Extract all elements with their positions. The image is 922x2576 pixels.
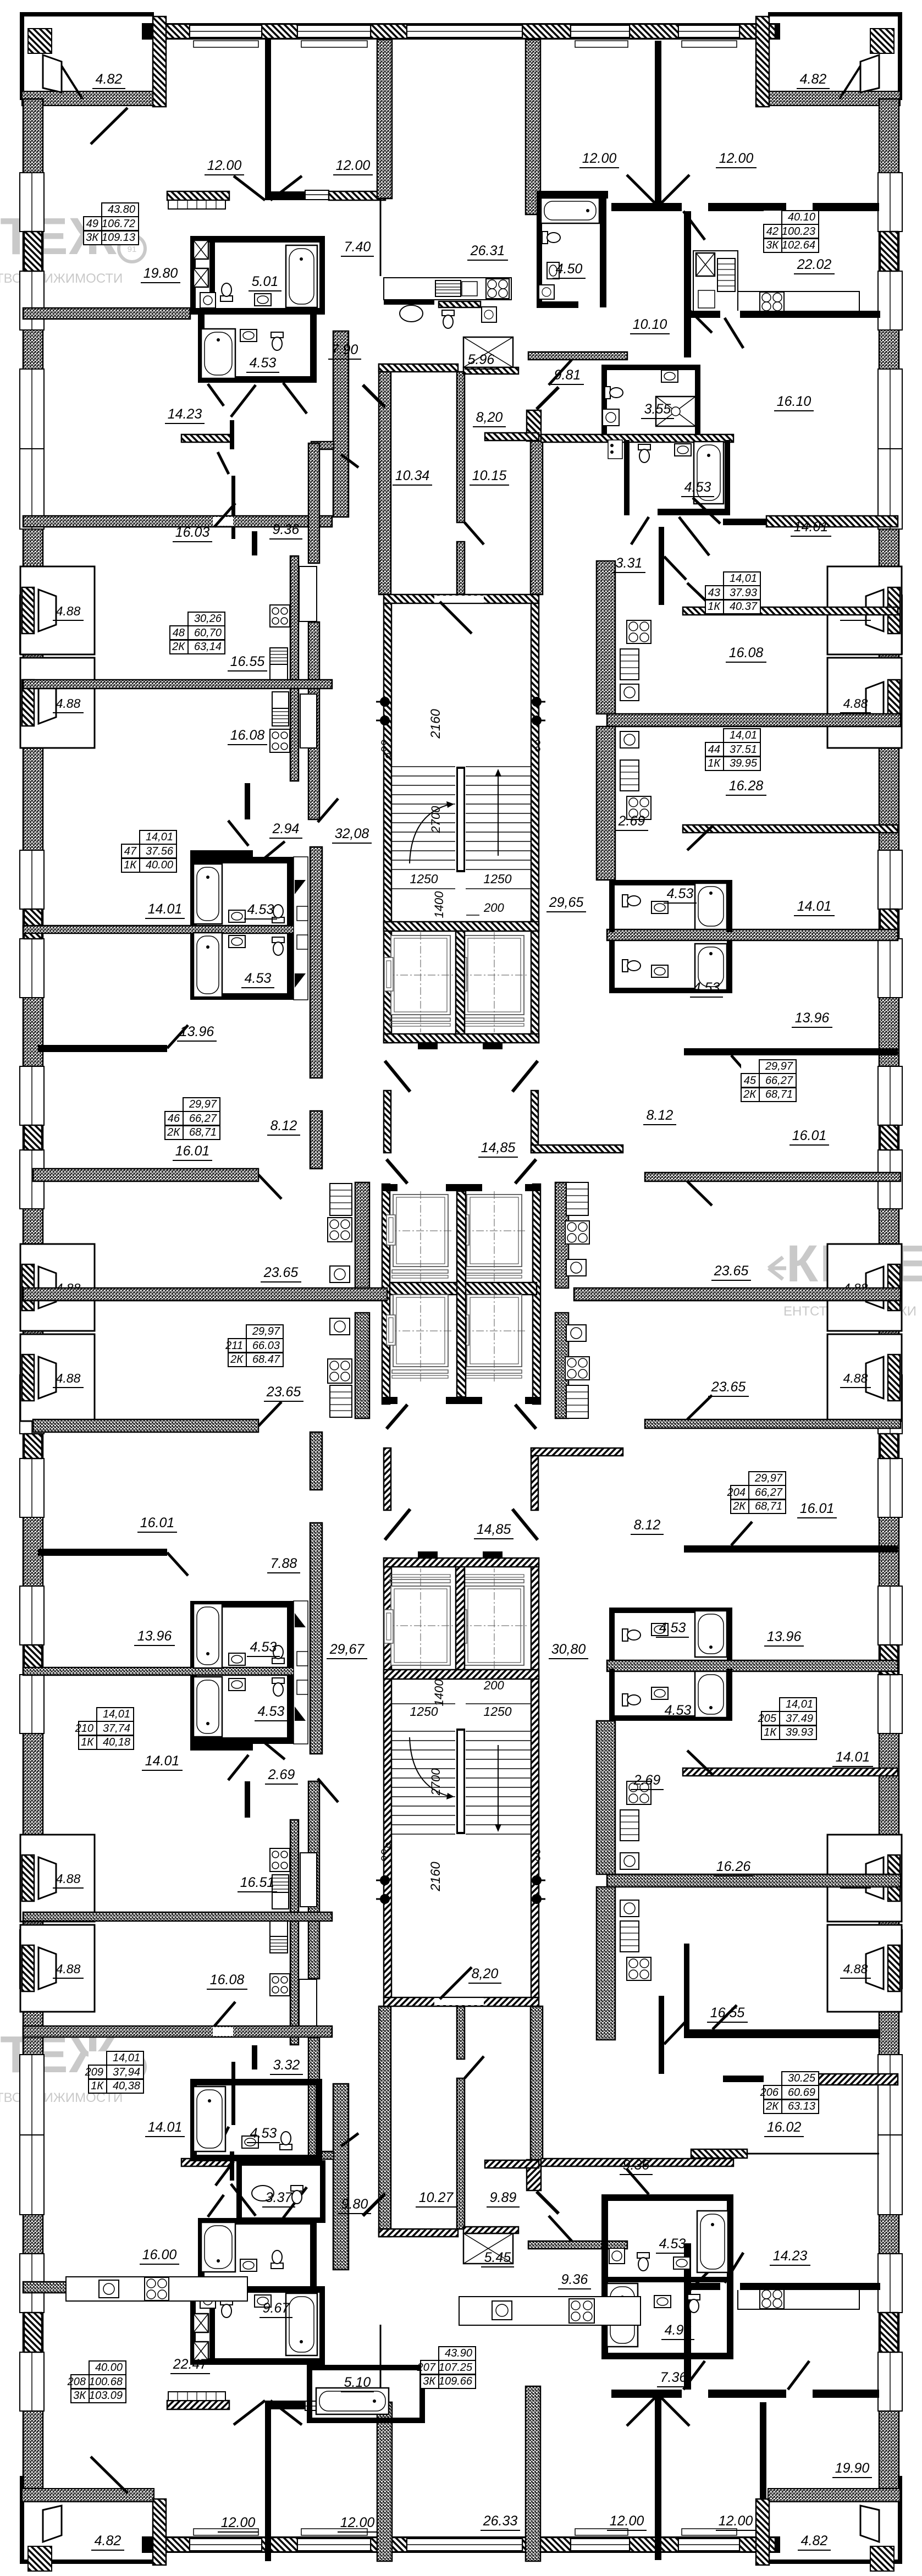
- svg-text:16.55: 16.55: [710, 2005, 745, 2021]
- svg-text:60.69: 60.69: [788, 2087, 815, 2099]
- svg-text:14.01: 14.01: [797, 899, 832, 914]
- svg-text:7.90: 7.90: [332, 342, 358, 357]
- svg-text:40.00: 40.00: [146, 859, 173, 871]
- svg-text:7.40: 7.40: [344, 239, 371, 255]
- svg-text:205: 205: [758, 1713, 777, 1725]
- svg-text:4.53: 4.53: [684, 480, 711, 495]
- svg-text:107.25: 107.25: [439, 2362, 473, 2374]
- svg-text:9.81: 9.81: [554, 367, 581, 383]
- svg-text:4.53: 4.53: [250, 2126, 277, 2141]
- svg-text:2.69: 2.69: [268, 1767, 295, 1782]
- svg-text:16.08: 16.08: [210, 1972, 245, 1988]
- svg-text:7.88: 7.88: [270, 1556, 297, 1571]
- svg-text:8.12: 8.12: [634, 1517, 661, 1533]
- svg-text:12.00: 12.00: [719, 2513, 753, 2529]
- svg-text:1К: 1К: [124, 859, 137, 871]
- svg-text:14,01: 14,01: [103, 1708, 130, 1720]
- svg-text:1К: 1К: [708, 757, 721, 769]
- svg-text:19.80: 19.80: [143, 266, 178, 281]
- svg-text:3.31: 3.31: [616, 555, 643, 571]
- svg-text:5.10: 5.10: [344, 2375, 371, 2390]
- svg-text:9.80: 9.80: [341, 2197, 368, 2212]
- svg-text:2К: 2К: [230, 1353, 244, 1366]
- svg-text:63.13: 63.13: [788, 2100, 815, 2112]
- svg-text:102.64: 102.64: [782, 239, 815, 251]
- svg-text:14.01: 14.01: [836, 1749, 870, 1765]
- svg-text:4.96: 4.96: [665, 2322, 692, 2338]
- svg-text:43: 43: [708, 587, 720, 599]
- svg-text:12.00: 12.00: [207, 158, 242, 173]
- svg-text:47: 47: [124, 845, 137, 857]
- svg-text:1400: 1400: [432, 1679, 446, 1707]
- svg-text:1250: 1250: [410, 872, 438, 886]
- svg-text:16.00: 16.00: [142, 2247, 177, 2263]
- svg-text:13.96: 13.96: [795, 1010, 830, 1026]
- svg-text:37.51: 37.51: [730, 744, 757, 756]
- svg-text:12.00: 12.00: [582, 151, 617, 166]
- svg-text:2700: 2700: [429, 806, 443, 834]
- svg-text:5.45: 5.45: [484, 2250, 511, 2265]
- svg-text:49: 49: [86, 218, 98, 230]
- svg-text:13.96: 13.96: [180, 1024, 214, 1039]
- svg-text:207: 207: [417, 2362, 436, 2374]
- svg-text:37,94: 37,94: [113, 2066, 140, 2078]
- svg-text:12.00: 12.00: [719, 151, 754, 166]
- svg-text:16.01: 16.01: [800, 1501, 835, 1516]
- svg-text:26.33: 26.33: [483, 2513, 518, 2529]
- svg-text:12.00: 12.00: [336, 158, 371, 173]
- svg-text:2.69: 2.69: [618, 813, 645, 829]
- svg-text:16.26: 16.26: [716, 1859, 751, 1874]
- svg-text:16.10: 16.10: [777, 394, 811, 409]
- svg-text:13.96: 13.96: [137, 1628, 172, 1644]
- svg-text:29,97: 29,97: [252, 1325, 280, 1337]
- svg-text:14,01: 14,01: [146, 831, 173, 843]
- svg-text:2К: 2К: [167, 1126, 180, 1138]
- svg-text:12.00: 12.00: [610, 2513, 644, 2529]
- svg-text:30.25: 30.25: [788, 2072, 816, 2084]
- svg-text:4.82: 4.82: [800, 71, 827, 87]
- svg-text:100.68: 100.68: [89, 2376, 123, 2388]
- svg-text:14.23: 14.23: [168, 406, 202, 422]
- svg-text:4.53: 4.53: [250, 1639, 277, 1655]
- svg-text:210: 210: [75, 1722, 93, 1735]
- svg-text:30,26: 30,26: [194, 613, 222, 625]
- svg-text:2160: 2160: [428, 709, 443, 739]
- svg-text:3К: 3К: [423, 2375, 436, 2387]
- svg-text:5.01: 5.01: [252, 274, 279, 289]
- svg-text:3.55: 3.55: [644, 401, 671, 417]
- svg-text:16.01: 16.01: [175, 1143, 210, 1159]
- svg-text:12.00: 12.00: [221, 2515, 256, 2530]
- svg-text:4.53: 4.53: [250, 355, 277, 371]
- svg-text:8,20: 8,20: [476, 410, 503, 425]
- svg-text:4.53: 4.53: [659, 1620, 686, 1636]
- svg-text:29,97: 29,97: [189, 1098, 217, 1110]
- svg-text:68,71: 68,71: [189, 1126, 217, 1138]
- svg-text:8,20: 8,20: [472, 1966, 499, 1981]
- svg-text:30,80: 30,80: [551, 1642, 586, 1657]
- svg-text:14.01: 14.01: [148, 901, 183, 917]
- svg-text:40.37: 40.37: [730, 601, 758, 613]
- svg-text:4.53: 4.53: [693, 980, 720, 995]
- svg-text:37.56: 37.56: [146, 845, 174, 857]
- svg-text:66,27: 66,27: [765, 1075, 793, 1087]
- svg-text:16.28: 16.28: [729, 778, 764, 794]
- svg-text:14.01: 14.01: [794, 519, 829, 535]
- svg-text:1К: 1К: [764, 1726, 777, 1738]
- svg-text:26.31: 26.31: [470, 243, 505, 258]
- svg-text:7.36: 7.36: [660, 2370, 687, 2385]
- svg-text:1К: 1К: [91, 2080, 104, 2092]
- svg-text:40,18: 40,18: [103, 1736, 130, 1748]
- svg-text:3.32: 3.32: [273, 2057, 300, 2073]
- svg-text:2К: 2К: [743, 1088, 757, 1100]
- svg-text:39.95: 39.95: [730, 757, 758, 769]
- svg-text:2160: 2160: [428, 1862, 443, 1892]
- svg-text:16.51: 16.51: [240, 1875, 275, 1890]
- svg-text:204: 204: [727, 1487, 746, 1499]
- svg-text:211: 211: [225, 1340, 243, 1352]
- svg-text:14,85: 14,85: [481, 1140, 516, 1155]
- svg-text:2К: 2К: [765, 2100, 779, 2112]
- svg-text:9.67: 9.67: [263, 2300, 290, 2316]
- svg-text:4.88: 4.88: [56, 1872, 81, 1886]
- svg-text:14,01: 14,01: [113, 2052, 140, 2064]
- svg-text:46: 46: [168, 1113, 180, 1125]
- svg-text:10.15: 10.15: [472, 468, 507, 483]
- svg-text:1К: 1К: [81, 1736, 94, 1748]
- svg-text:14,01: 14,01: [730, 573, 757, 585]
- svg-text:1400: 1400: [432, 891, 446, 918]
- svg-text:4.53: 4.53: [247, 902, 274, 917]
- svg-text:44: 44: [708, 744, 720, 756]
- svg-text:1250: 1250: [483, 872, 511, 886]
- svg-text:45: 45: [744, 1075, 757, 1087]
- svg-text:22.47: 22.47: [173, 2357, 208, 2372]
- svg-text:68,71: 68,71: [765, 1088, 793, 1100]
- svg-text:9.89: 9.89: [490, 2190, 517, 2205]
- svg-text:4.88: 4.88: [56, 604, 81, 618]
- svg-text:23.65: 23.65: [714, 1263, 749, 1279]
- svg-text:14,85: 14,85: [477, 1522, 511, 1537]
- svg-text:100.23: 100.23: [782, 225, 815, 238]
- svg-text:200: 200: [483, 901, 504, 915]
- svg-text:68,71: 68,71: [755, 1500, 782, 1512]
- svg-text:16.01: 16.01: [792, 1128, 827, 1143]
- svg-text:16.01: 16.01: [140, 1515, 175, 1531]
- svg-text:40,38: 40,38: [113, 2080, 140, 2092]
- svg-text:91: 91: [128, 245, 137, 254]
- svg-text:10.27: 10.27: [419, 2190, 454, 2205]
- svg-text:23.65: 23.65: [711, 1379, 746, 1395]
- svg-text:14,01: 14,01: [730, 729, 757, 741]
- svg-text:14.01: 14.01: [148, 2120, 183, 2135]
- svg-text:14.23: 14.23: [773, 2248, 808, 2264]
- svg-text:3К: 3К: [73, 2390, 86, 2402]
- svg-text:23.65: 23.65: [266, 1384, 301, 1400]
- svg-text:200: 200: [483, 1678, 504, 1692]
- svg-text:23.65: 23.65: [263, 1265, 299, 1280]
- svg-text:209: 209: [85, 2066, 103, 2078]
- svg-text:8.12: 8.12: [270, 1118, 297, 1133]
- svg-text:1К: 1К: [708, 601, 721, 613]
- svg-text:16.08: 16.08: [729, 645, 764, 660]
- svg-text:37.93: 37.93: [730, 587, 757, 599]
- svg-text:32,08: 32,08: [335, 826, 369, 841]
- svg-text:103.09: 103.09: [89, 2390, 123, 2402]
- svg-text:5.96: 5.96: [468, 352, 495, 367]
- svg-text:3К: 3К: [766, 239, 779, 251]
- svg-text:43.90: 43.90: [445, 2347, 472, 2359]
- svg-text:2700: 2700: [429, 1768, 443, 1796]
- svg-text:42: 42: [766, 225, 779, 238]
- svg-text:4.53: 4.53: [665, 1703, 692, 1718]
- svg-text:29,97: 29,97: [754, 1472, 783, 1484]
- svg-text:29,97: 29,97: [765, 1060, 793, 1072]
- svg-text:4.88: 4.88: [843, 1962, 868, 1976]
- svg-text:4.88: 4.88: [56, 696, 81, 711]
- svg-text:4.88: 4.88: [843, 696, 868, 711]
- svg-text:4.82: 4.82: [801, 2533, 828, 2549]
- svg-text:14.01: 14.01: [145, 1753, 180, 1769]
- svg-text:29,65: 29,65: [549, 895, 584, 910]
- svg-text:ТВО ДВИЖИМОСТИ: ТВО ДВИЖИМОСТИ: [0, 271, 123, 286]
- svg-text:4.53: 4.53: [659, 2236, 686, 2252]
- svg-text:16.03: 16.03: [175, 525, 210, 540]
- svg-text:109.13: 109.13: [102, 232, 135, 244]
- svg-text:40.00: 40.00: [95, 2362, 123, 2374]
- svg-text:63,14: 63,14: [194, 641, 222, 653]
- svg-text:4.53: 4.53: [667, 886, 694, 901]
- svg-text:2.94: 2.94: [272, 821, 300, 836]
- svg-text:68.47: 68.47: [252, 1353, 280, 1366]
- svg-text:2К: 2К: [732, 1500, 746, 1512]
- svg-text:4.53: 4.53: [258, 1704, 285, 1719]
- svg-text:40.10: 40.10: [788, 211, 815, 223]
- svg-text:4.82: 4.82: [96, 71, 123, 87]
- svg-text:10.34: 10.34: [395, 468, 430, 483]
- svg-text:14,01: 14,01: [786, 1698, 813, 1710]
- svg-text:48: 48: [173, 627, 185, 639]
- svg-text:4.50: 4.50: [556, 261, 583, 277]
- svg-text:13.96: 13.96: [767, 1629, 802, 1644]
- svg-text:206: 206: [760, 2087, 779, 2099]
- svg-text:37.49: 37.49: [786, 1713, 813, 1725]
- svg-text:10.10: 10.10: [633, 317, 667, 332]
- svg-text:4.82: 4.82: [95, 2533, 122, 2549]
- svg-text:16.08: 16.08: [230, 728, 265, 743]
- svg-text:109.66: 109.66: [439, 2375, 473, 2387]
- svg-text:208: 208: [67, 2376, 86, 2388]
- svg-text:9.36: 9.36: [623, 2157, 650, 2173]
- svg-text:37,74: 37,74: [103, 1722, 130, 1735]
- svg-text:3.37: 3.37: [266, 2190, 293, 2205]
- svg-text:4.88: 4.88: [56, 1371, 81, 1385]
- svg-text:29,67: 29,67: [329, 1642, 365, 1657]
- svg-text:1250: 1250: [483, 1704, 511, 1719]
- svg-text:4.53: 4.53: [245, 971, 272, 986]
- svg-text:9.36: 9.36: [561, 2272, 588, 2287]
- svg-text:12.00: 12.00: [340, 2515, 375, 2530]
- svg-text:3К: 3К: [86, 232, 99, 244]
- svg-text:4.88: 4.88: [56, 1962, 81, 1976]
- svg-text:8.12: 8.12: [647, 1108, 673, 1123]
- svg-text:19.90: 19.90: [835, 2461, 870, 2476]
- svg-text:66,27: 66,27: [755, 1487, 783, 1499]
- svg-text:9.36: 9.36: [273, 522, 300, 537]
- svg-text:43.80: 43.80: [108, 203, 135, 216]
- svg-text:2.69: 2.69: [633, 1773, 661, 1788]
- svg-text:39.93: 39.93: [786, 1726, 813, 1738]
- svg-text:66,27: 66,27: [189, 1113, 217, 1125]
- svg-text:66.03: 66.03: [252, 1340, 280, 1352]
- svg-text:16.55: 16.55: [230, 654, 265, 669]
- svg-text:106.72: 106.72: [102, 218, 135, 230]
- svg-text:4.88: 4.88: [843, 1371, 868, 1385]
- svg-text:16.02: 16.02: [767, 2120, 802, 2135]
- svg-text:60,70: 60,70: [194, 627, 222, 639]
- svg-text:2К: 2К: [172, 641, 185, 653]
- svg-text:22.02: 22.02: [797, 257, 832, 272]
